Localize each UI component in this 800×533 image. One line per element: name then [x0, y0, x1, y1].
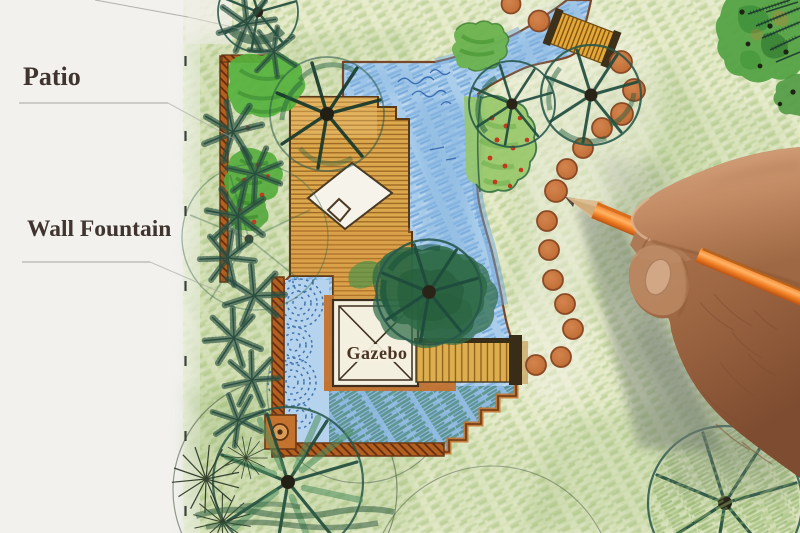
- svg-text:Gazebo: Gazebo: [347, 343, 408, 363]
- svg-text:Patio: Patio: [23, 62, 81, 91]
- svg-text:Wall Fountain: Wall Fountain: [27, 216, 171, 242]
